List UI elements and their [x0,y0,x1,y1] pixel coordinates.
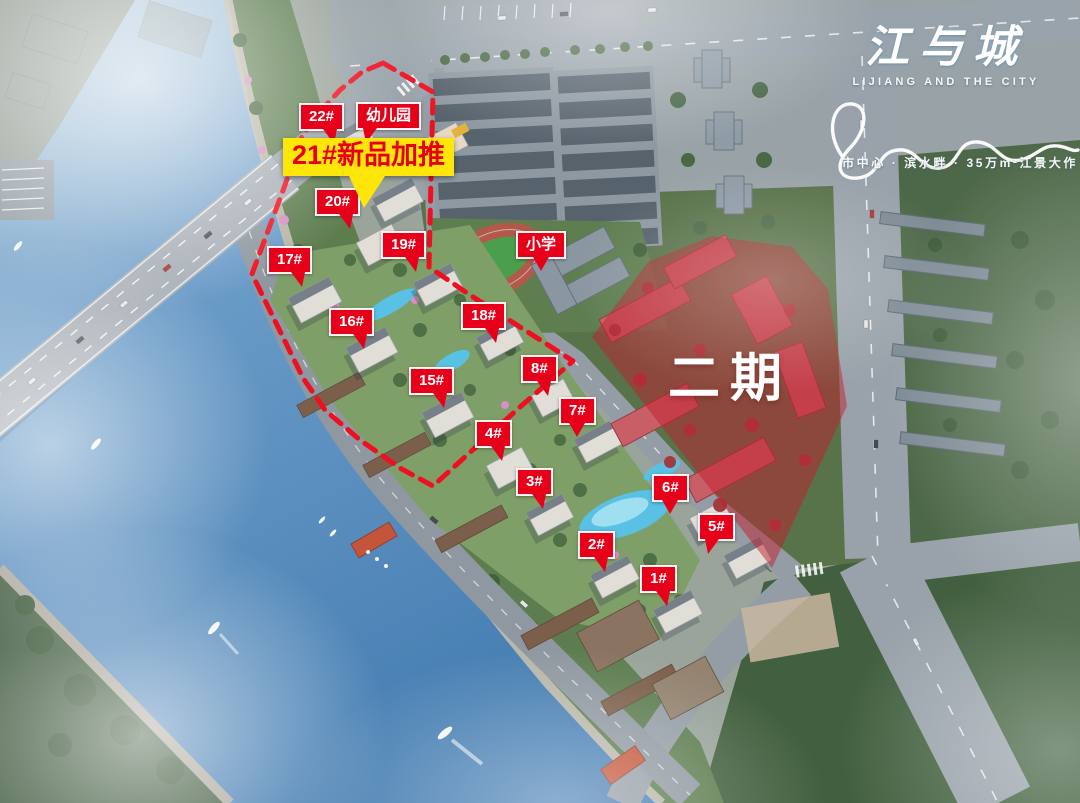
building-label-19: 19# [381,231,426,259]
phase2-caption: 二期 [668,336,792,411]
building-label-15: 15# [409,367,454,395]
building-label-kindergarten: 幼儿园 [356,102,421,130]
project-logo: 江与城 LIJIANG AND THE CITY 市中心 · 滨水畔 · 35万… [818,26,1074,88]
building-label-8: 8# [521,355,558,383]
promo-banner-21: 21#新品加推 [283,138,454,176]
logo-title-en: LIJIANG AND THE CITY [818,76,1074,88]
building-label-7: 7# [559,397,596,425]
logo-tagline: 市中心 · 滨水畔 · 35万m²江景大作 [842,154,1072,171]
building-label-2: 2# [578,531,615,559]
logo-title-zh: 江与城 [818,26,1074,70]
building-label-22: 22# [299,103,344,131]
building-label-primary-school: 小学 [516,231,566,259]
building-label-1: 1# [640,565,677,593]
building-label-17: 17# [267,246,312,274]
building-label-3: 3# [516,468,553,496]
building-labels-layer: 22#幼儿园20#19#17#小学16#18#8#15#7#4#3#6#5#2#… [0,0,1080,803]
building-label-4: 4# [475,420,512,448]
building-label-18: 18# [461,302,506,330]
building-label-5: 5# [698,513,735,541]
building-label-16: 16# [329,308,374,336]
building-label-6: 6# [652,474,689,502]
masterplan-aerial-render: 22#幼儿园20#19#17#小学16#18#8#15#7#4#3#6#5#2#… [0,0,1080,803]
